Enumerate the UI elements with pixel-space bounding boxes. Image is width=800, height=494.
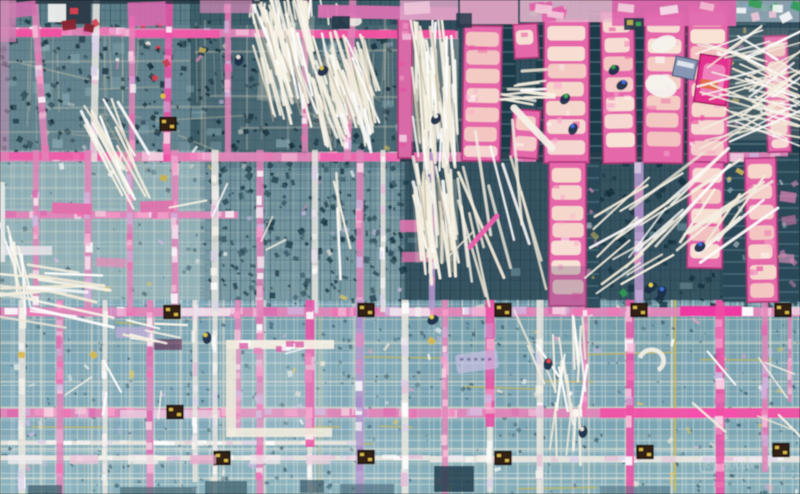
svg-text:500px: 500px: [722, 458, 756, 472]
svg-text:c: c: [706, 460, 711, 471]
